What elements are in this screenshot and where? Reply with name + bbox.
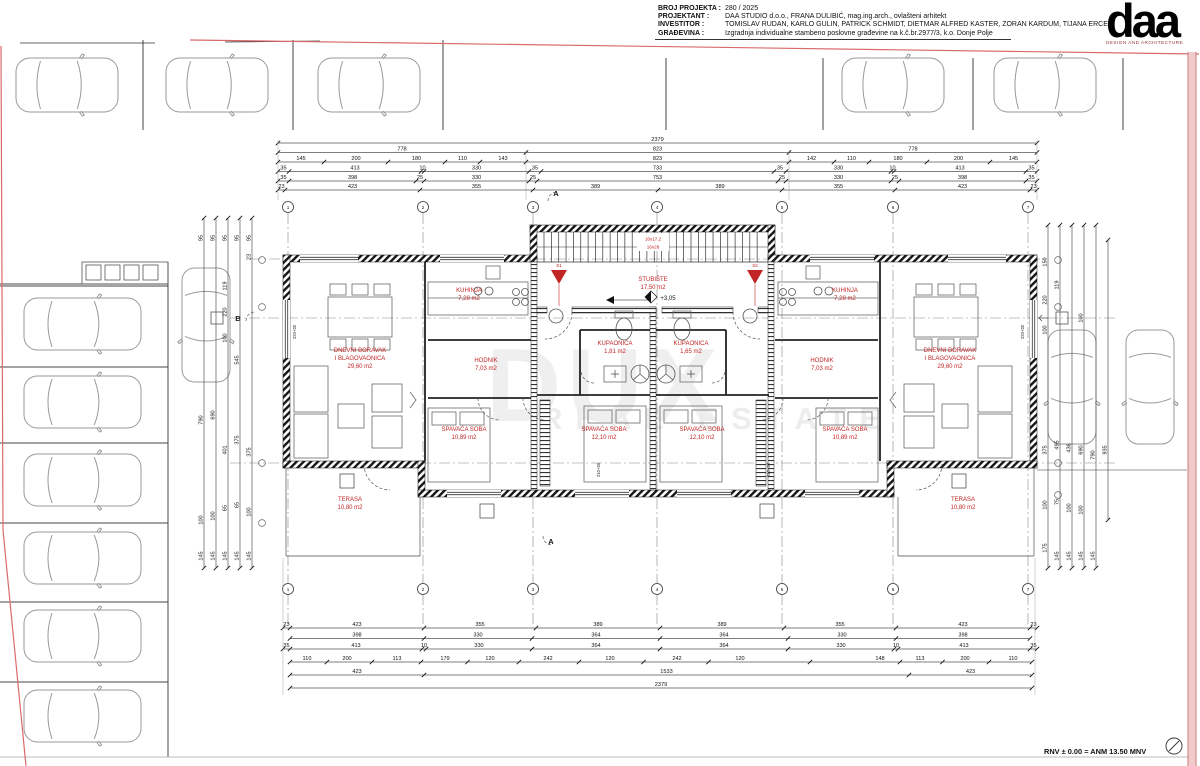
room-name: TERASA	[951, 497, 975, 503]
dimension-value: 110	[1009, 656, 1018, 662]
window	[677, 490, 731, 497]
dimension-value: 35	[1028, 175, 1034, 181]
dimension-value: 100	[211, 511, 217, 520]
dimension-value: 120	[485, 656, 494, 662]
window	[440, 255, 504, 262]
room-name: STUBIŠTE	[638, 276, 667, 283]
room-name: KUHINJA	[456, 288, 482, 294]
dimension-value: 113	[393, 656, 402, 662]
bed-note: 210+30	[766, 462, 771, 477]
dimension-value: 35	[532, 166, 538, 172]
furniture-item	[374, 284, 390, 295]
compass-icon	[1166, 738, 1182, 754]
level-marker	[645, 291, 651, 303]
dimension-value: 401	[223, 445, 229, 454]
room-name: I BLAGOVAONICA	[925, 356, 976, 362]
room-name: DNEVNI BORAVAK	[924, 348, 976, 354]
dimension-value: 145	[211, 551, 217, 560]
dimension-value: 145	[235, 551, 241, 560]
title-block: BROJ PROJEKTA :280 / 2025 PROJEKTANT :DA…	[658, 5, 1113, 38]
grid-bubble-number: 6	[892, 587, 895, 592]
title-block-row: PROJEKTANT :DAA STUDIO d.o.o., FRANA DUL…	[658, 13, 1113, 21]
dimension-value: 398	[348, 175, 357, 181]
stair-note: 16x17,2	[645, 237, 662, 242]
room-name: SPAVAĆA SOBA	[822, 426, 867, 433]
dimension-value: 200	[960, 656, 969, 662]
room-name: KUHINJA	[832, 288, 858, 294]
dimension-value: 330	[474, 643, 483, 649]
room-area: 7,03 m2	[811, 366, 833, 372]
fixture-circle	[814, 287, 822, 295]
room-name: KUPAONICA	[674, 341, 709, 347]
furniture-item	[904, 384, 934, 412]
window	[283, 300, 290, 358]
room-label: TERASA10,80 m2	[950, 497, 976, 511]
dimension-value: 23	[1030, 184, 1036, 190]
dimension-value: 95	[235, 235, 241, 241]
title-block-row: INVESTITOR :TOMISLAV RUDAN, KARLO GULIN,…	[658, 21, 1113, 29]
dimension-value: 95	[223, 235, 229, 241]
dimension-value: 145	[247, 551, 253, 560]
dimension-value: 242	[672, 656, 681, 662]
dimension-value: 355	[472, 184, 481, 190]
dimension-value: 690	[211, 410, 217, 419]
dimension-value: 495	[1055, 440, 1061, 449]
furniture-item	[372, 416, 402, 448]
furniture-item	[978, 366, 1012, 412]
dimension-value: 145	[199, 551, 205, 560]
dimension-value: 423	[352, 622, 361, 628]
dimension-value: 23	[283, 622, 289, 628]
column	[480, 504, 494, 518]
dimension-value: 10	[421, 643, 427, 649]
field-value: DAA STUDIO d.o.o., FRANA DULIBIĆ, mag.in…	[725, 13, 946, 21]
dimension-value: 1533	[660, 669, 672, 675]
dimension-value: 790	[199, 415, 205, 424]
room-area: 29,60 m2	[937, 364, 963, 370]
dimension-value: 95	[211, 235, 217, 241]
grid-bubble-number: 5	[781, 205, 784, 210]
tv-mark	[410, 392, 416, 408]
window	[948, 255, 1006, 262]
dimension-value: 355	[834, 184, 843, 190]
dimension-value: 545	[235, 355, 241, 364]
dimension-value: 75	[1055, 499, 1061, 505]
room-area: 29,60 m2	[347, 364, 373, 370]
dimension-value: 364	[591, 643, 600, 649]
dimension-value: 778	[908, 147, 917, 153]
dimension-value: 23	[247, 254, 253, 260]
dimension-value: 413	[351, 643, 360, 649]
dimension-value: 398	[958, 175, 967, 181]
section-b-marker	[211, 312, 223, 324]
exterior-wall	[283, 255, 290, 468]
dimension-value: 364	[591, 633, 600, 639]
interior-wall	[758, 307, 768, 313]
interior-wall	[768, 262, 774, 490]
window	[447, 490, 501, 497]
car-outline	[24, 450, 141, 510]
furniture-item	[328, 297, 392, 337]
dimension-value: 330	[472, 166, 481, 172]
dimension-value: 145	[1055, 551, 1061, 560]
room-label: TERASA10,80 m2	[337, 497, 363, 511]
room-area: 10,80 m2	[950, 505, 976, 511]
title-block-divider	[655, 39, 1011, 40]
dimension-value: 330	[834, 166, 843, 172]
dimension-value: 35	[777, 166, 783, 172]
dimension-value: 145	[1009, 156, 1018, 162]
furniture-item	[432, 412, 456, 425]
exterior-wall	[530, 225, 537, 262]
room-label: SPAVAĆA SOBA10,89 m2	[441, 426, 486, 441]
grid-bubble-number: 7	[1027, 587, 1030, 592]
dimension-value: 175	[1043, 543, 1049, 552]
dimension-value: 119	[1055, 281, 1061, 290]
interior-wall	[650, 307, 656, 490]
fixture-circle	[743, 309, 757, 323]
furniture-item	[372, 384, 402, 412]
window	[810, 255, 874, 262]
dimension-value: 100	[1043, 500, 1049, 509]
dimension-value: 10	[893, 643, 899, 649]
fixture-circle	[522, 289, 529, 296]
door-swing	[733, 312, 760, 339]
axis-marker-circle	[1055, 304, 1062, 311]
column	[760, 504, 774, 518]
section-a-label: A	[553, 189, 559, 198]
dimension-value: 364	[719, 643, 728, 649]
grid-bubble-number: 2	[422, 205, 425, 210]
dimension-value: 25	[530, 175, 536, 181]
grid-bubble-number: 3	[532, 205, 535, 210]
dimension-value: 389	[591, 184, 600, 190]
dimension-value: 935	[1103, 445, 1109, 454]
dimension-value: 180	[412, 156, 421, 162]
dimension-value: 413	[955, 166, 964, 172]
grid-bubble-number: 2	[422, 587, 425, 592]
room-label: DNEVNI BORAVAKI BLAGOVAONICA29,60 m2	[924, 348, 976, 370]
dimension-value: 100	[223, 333, 229, 342]
dimension-value: 145	[1067, 551, 1073, 560]
drain-triangle	[747, 270, 763, 284]
room-label: DNEVNI BORAVAKI BLAGOVAONICA29,60 m2	[334, 348, 386, 370]
level-value: +3,05	[660, 296, 676, 302]
dimension-value: 142	[807, 156, 816, 162]
dimension-value: 242	[543, 656, 552, 662]
dimension-value: 65	[235, 502, 241, 508]
dimension-value: 389	[717, 622, 726, 628]
axis-marker-circle	[1055, 492, 1062, 499]
dimension-value: 823	[653, 156, 662, 162]
window	[300, 255, 358, 262]
dimension-value: 100	[199, 515, 205, 524]
dimension-value: 145	[296, 156, 305, 162]
car-outline	[166, 54, 268, 116]
furniture-item	[330, 284, 346, 295]
stair-note: 16x28	[647, 245, 660, 250]
car-outline	[24, 528, 141, 588]
grid-bubble-number: 5	[781, 587, 784, 592]
interior-wall	[537, 307, 547, 313]
dimension-value: 355	[475, 622, 484, 628]
dimension-value: 35	[283, 643, 289, 649]
dimension-value: 113	[916, 656, 925, 662]
furniture-item	[904, 416, 934, 448]
dimension-value: 423	[958, 622, 967, 628]
grid-bubble-number: 7	[1027, 205, 1030, 210]
dimension-value: 2379	[655, 682, 667, 688]
grid-bubble-number: 1	[287, 205, 290, 210]
furniture-item	[352, 284, 368, 295]
dimension-value: 413	[350, 166, 359, 172]
dimension-value: 145	[1079, 551, 1085, 560]
furniture-item	[806, 266, 820, 279]
dimension-value: 375	[235, 435, 241, 444]
dimension-value: 100	[1043, 325, 1049, 334]
room-area: 10,89 m2	[832, 435, 858, 441]
dimension-value: 110	[303, 656, 312, 662]
fixture-circle	[780, 299, 787, 306]
dimension-value: 389	[593, 622, 602, 628]
furniture-item	[914, 297, 978, 337]
furniture-item	[960, 284, 976, 295]
dimension-value: 120	[605, 656, 614, 662]
property-boundary-band	[1188, 52, 1196, 766]
fixture-circle	[549, 309, 563, 323]
dimension-value: 436	[1067, 443, 1073, 452]
drain-label: S1	[556, 263, 562, 268]
dimension-value: 733	[653, 166, 662, 172]
room-area: 7,03 m2	[475, 366, 497, 372]
dimension-value: 790	[1091, 450, 1097, 459]
dimension-value: 200	[954, 156, 963, 162]
field-label: GRAĐEVINA :	[658, 30, 725, 38]
dimension-value: 150	[1043, 257, 1049, 266]
dimension-value: 179	[440, 656, 449, 662]
grid-bubble-number: 4	[656, 205, 659, 210]
daa-logo: daa DESIGN AND ARCHITECTURE	[1106, 0, 1183, 45]
room-area: 12,10 m2	[689, 435, 715, 441]
dimension-value: 330	[472, 175, 481, 181]
parapet-note: 220+30	[1020, 324, 1025, 339]
staircase: 16x17,216x28+3,05	[537, 232, 768, 304]
dimension-value: 23	[1030, 622, 1036, 628]
furniture-item	[486, 266, 500, 279]
furniture-item	[978, 414, 1012, 458]
room-area: 1,81 m2	[604, 349, 626, 355]
furniture-item	[942, 404, 968, 428]
dimension-value: 23	[278, 184, 284, 190]
dimension-value: 220	[223, 307, 229, 316]
dimension-value: 35	[1028, 166, 1034, 172]
room-area: 7,28 m2	[834, 296, 856, 302]
room-name: SPAVAĆA SOBA	[441, 426, 486, 433]
floor-plan-drawing: DUXREAL ESTATE1122334455667716x17,216x28…	[0, 0, 1200, 766]
compass-needle	[1169, 741, 1179, 751]
dimension-value: 200	[351, 156, 360, 162]
room-name: I BLAGOVAONICA	[335, 356, 386, 362]
car-outline	[318, 54, 420, 116]
dimension-value: 330	[836, 643, 845, 649]
axis-marker-circle	[259, 257, 266, 264]
interior-wall	[531, 262, 537, 490]
dimension-value: 220	[1043, 295, 1049, 304]
fixture-circle	[513, 289, 520, 296]
bin-square	[143, 265, 158, 280]
window	[805, 490, 859, 497]
dimension-value: 95	[247, 235, 253, 241]
grid-bubble-number: 1	[287, 587, 290, 592]
interior-wall	[540, 400, 550, 486]
dimension-value: 95	[199, 235, 205, 241]
dimension-value: 145	[223, 551, 229, 560]
dimension-value: 35	[280, 166, 286, 172]
dimension-value: 389	[715, 184, 724, 190]
room-name: SPAVAĆA SOBA	[581, 426, 626, 433]
dimension-value: 35	[1030, 643, 1036, 649]
dimension-value: 65	[223, 505, 229, 511]
dimension-value: 119	[223, 282, 229, 291]
drain-label: S2	[752, 263, 758, 268]
field-label: PROJEKTANT :	[658, 13, 725, 21]
dimension-value: 330	[837, 633, 846, 639]
fixture-circle	[522, 299, 529, 306]
dimension-value: 364	[719, 633, 728, 639]
dimension-value: 778	[397, 147, 406, 153]
section-b-label: B	[235, 314, 241, 323]
room-name: HODNIK	[810, 358, 833, 364]
furniture-item	[294, 366, 328, 412]
column	[952, 474, 966, 488]
property-boundary	[1, 46, 26, 766]
fixture-circle	[789, 289, 796, 296]
dimension-value: 100	[1079, 313, 1085, 322]
dimension-value: 10	[889, 166, 895, 172]
room-label: STUBIŠTE17,50 m2	[638, 276, 667, 291]
property-boundary	[190, 40, 1199, 54]
drain-triangle	[551, 270, 567, 284]
dimension-value: 35	[280, 175, 286, 181]
furniture-item	[916, 284, 932, 295]
room-area: 1,65 m2	[680, 349, 702, 355]
dimension-value: 100	[1067, 503, 1073, 512]
dimension-value: 398	[352, 633, 361, 639]
dimension-value: 423	[958, 184, 967, 190]
axis-marker-circle	[259, 304, 266, 311]
fixture-circle	[789, 299, 796, 306]
room-name: DNEVNI BORAVAK	[334, 348, 386, 354]
furniture-item	[460, 412, 484, 425]
section-arrow	[1039, 315, 1048, 321]
car-outline	[16, 54, 118, 116]
furniture-item	[938, 284, 954, 295]
dimension-value: 355	[835, 622, 844, 628]
dimension-value: 330	[473, 633, 482, 639]
dimension-value: 110	[847, 156, 856, 162]
dimension-value: 110	[458, 156, 467, 162]
dimension-value: 25	[779, 175, 785, 181]
exterior-wall	[887, 461, 1037, 468]
parapet-note: 220+30	[292, 324, 297, 339]
furniture-item	[294, 414, 328, 458]
car-outline	[24, 686, 141, 746]
field-label: BROJ PROJEKTA :	[658, 5, 725, 13]
furniture-item	[428, 408, 490, 482]
dimension-value: 823	[653, 147, 662, 153]
interior-wall	[756, 400, 766, 486]
car-outline	[24, 372, 141, 432]
field-value: 280 / 2025	[725, 5, 758, 13]
dimension-value: 2379	[651, 137, 663, 143]
car-outline	[842, 54, 944, 116]
car-outline	[24, 606, 141, 666]
drawing-sheet: DUXREAL ESTATE1122334455667716x17,216x28…	[0, 0, 1200, 766]
fixture-circle	[513, 299, 520, 306]
room-area: 7,28 m2	[458, 296, 480, 302]
logo-wordmark: daa	[1106, 0, 1183, 42]
window	[575, 490, 629, 497]
bin-square	[86, 265, 101, 280]
logo-subtitle: DESIGN AND ARCHITECTURE	[1106, 40, 1183, 45]
field-label: INVESTITOR :	[658, 21, 725, 29]
title-block-row: GRAĐEVINA :Izgradnja individualne stambe…	[658, 30, 1113, 38]
field-value: Izgradnja individualne stambeno poslovne…	[725, 30, 993, 38]
car-outline	[994, 54, 1096, 116]
car-outline	[1122, 330, 1178, 444]
window	[1030, 300, 1037, 358]
dimension-value: 100	[1079, 505, 1085, 514]
dimension-value: 330	[834, 175, 843, 181]
dimension-value: 398	[958, 633, 967, 639]
dimension-value: 25	[892, 175, 898, 181]
elevation-note: RNV ± 0.00 = ANM 13.50 MNV	[1044, 747, 1146, 756]
column	[340, 474, 354, 488]
grid-bubble-number: 4	[656, 587, 659, 592]
dimension-value: 10	[419, 166, 425, 172]
dimension-value: 25	[417, 175, 423, 181]
bed-note: 210+30	[596, 462, 601, 477]
title-block-row: BROJ PROJEKTA :280 / 2025	[658, 5, 1113, 13]
car-outline	[24, 294, 141, 354]
room-area: 17,50 m2	[640, 285, 666, 291]
room-area: 12,10 m2	[591, 435, 617, 441]
dimension-value: 120	[735, 656, 744, 662]
dimension-value: 180	[893, 156, 902, 162]
dimension-value: 148	[875, 656, 884, 662]
interior-wall	[572, 307, 656, 313]
furniture-item	[338, 404, 364, 428]
dimension-value: 145	[1091, 551, 1097, 560]
axis-marker-circle	[1055, 257, 1062, 264]
dimension-value: 690	[1079, 445, 1085, 454]
dimension-value: 375	[247, 447, 253, 456]
grid-bubble-number: 3	[532, 587, 535, 592]
exterior-wall	[283, 461, 425, 468]
fixture-circle	[485, 287, 493, 295]
dimension-value: 753	[653, 175, 662, 181]
room-name: SPAVAĆA SOBA	[679, 426, 724, 433]
bin-square	[124, 265, 139, 280]
room-name: HODNIK	[474, 358, 497, 364]
dimension-value: 100	[247, 507, 253, 516]
room-name: KUPAONICA	[598, 341, 633, 347]
exterior-wall	[1030, 255, 1037, 468]
dimension-value: 143	[498, 156, 507, 162]
field-value: TOMISLAV RUDAN, KARLO GULIN, PATRICK SCH…	[725, 21, 1113, 29]
dimension-value: 413	[959, 643, 968, 649]
room-area: 10,80 m2	[337, 505, 363, 511]
